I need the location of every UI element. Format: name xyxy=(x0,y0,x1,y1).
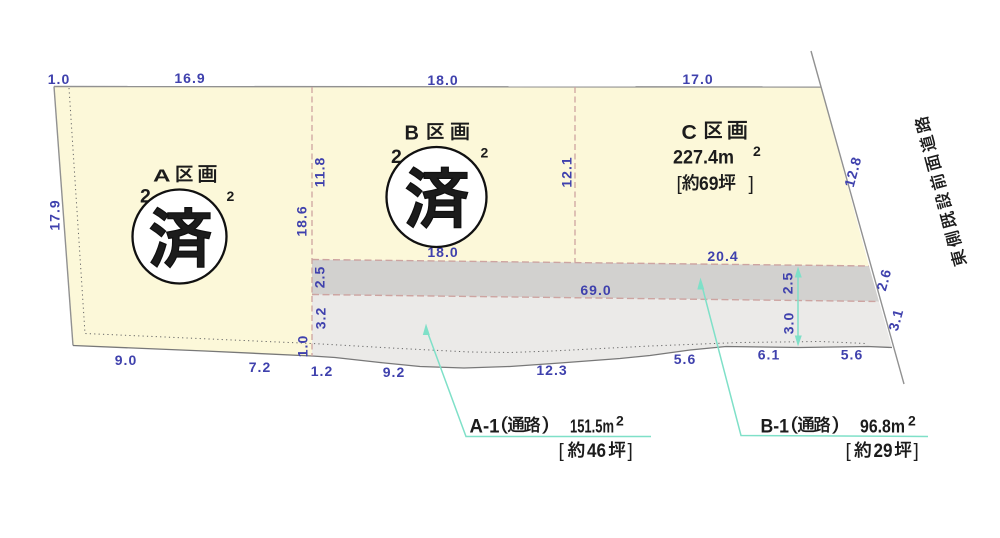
svg-text:6.1: 6.1 xyxy=(758,347,780,363)
svg-text:]: ] xyxy=(628,441,633,462)
svg-text:A: A xyxy=(153,165,171,185)
svg-text:2: 2 xyxy=(753,143,761,159)
svg-text:9.0: 9.0 xyxy=(115,352,137,368)
svg-text:1.0: 1.0 xyxy=(48,71,70,87)
svg-text:3.0: 3.0 xyxy=(781,312,797,334)
svg-text:[: [ xyxy=(677,174,683,195)
svg-text:]: ] xyxy=(749,174,754,195)
svg-text:A-1: A-1 xyxy=(470,417,500,438)
svg-text:2.5: 2.5 xyxy=(312,266,328,288)
svg-text:2: 2 xyxy=(616,413,624,429)
svg-text:B: B xyxy=(405,123,419,145)
svg-text:[: [ xyxy=(846,441,852,462)
svg-text:17.9: 17.9 xyxy=(47,199,63,230)
svg-text:96.8m: 96.8m xyxy=(860,416,905,437)
svg-text:5.6: 5.6 xyxy=(841,347,863,363)
svg-text:69.0: 69.0 xyxy=(580,282,611,298)
svg-text:1.2: 1.2 xyxy=(311,363,333,379)
svg-text:]: ] xyxy=(914,441,919,462)
svg-text:1.0: 1.0 xyxy=(295,335,311,357)
svg-text:[: [ xyxy=(559,441,565,462)
svg-text:2: 2 xyxy=(481,145,489,161)
svg-text:C: C xyxy=(682,121,697,143)
svg-text:17.0: 17.0 xyxy=(682,71,713,87)
svg-text:20.4: 20.4 xyxy=(707,248,738,264)
svg-text:2: 2 xyxy=(908,413,916,429)
svg-text:11.8: 11.8 xyxy=(312,157,328,187)
svg-text:16.9: 16.9 xyxy=(174,70,205,86)
svg-text:5.6: 5.6 xyxy=(674,351,696,367)
svg-text:18.0: 18.0 xyxy=(427,72,458,88)
svg-text:9.2: 9.2 xyxy=(383,364,405,380)
svg-text:151.5m: 151.5m xyxy=(570,416,614,437)
svg-text:7.2: 7.2 xyxy=(249,359,271,375)
svg-text:69: 69 xyxy=(699,174,719,195)
svg-text:18.6: 18.6 xyxy=(294,205,310,236)
svg-text:46: 46 xyxy=(587,441,606,462)
svg-text:12.1: 12.1 xyxy=(559,156,575,187)
svg-text:2.5: 2.5 xyxy=(780,272,796,294)
svg-text:29: 29 xyxy=(874,441,893,462)
svg-text:12.3: 12.3 xyxy=(536,362,567,378)
svg-text:227.4m: 227.4m xyxy=(673,147,734,169)
svg-text:2: 2 xyxy=(227,188,235,204)
svg-text:B-1: B-1 xyxy=(761,417,790,438)
svg-text:3.2: 3.2 xyxy=(313,307,329,329)
